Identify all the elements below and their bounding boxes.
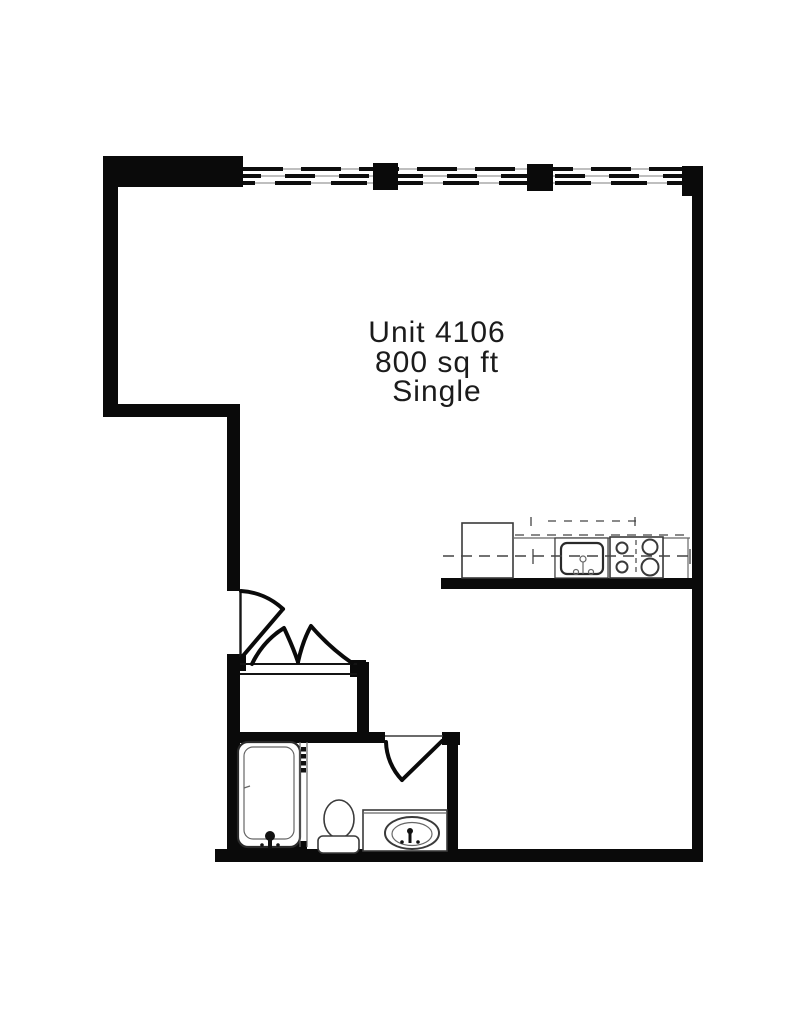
floor-plan-drawing: Unit 4106 800 sq ft Single <box>0 0 796 1030</box>
unit-type-text: Single <box>392 375 481 408</box>
window-mullion <box>527 164 553 191</box>
bathtub-icon <box>238 742 307 848</box>
vanity-faucet-stem <box>409 833 412 843</box>
toilet-bowl <box>324 800 354 838</box>
tile-mark <box>301 747 306 752</box>
wall-west-upper <box>103 156 118 417</box>
stove-icon <box>610 537 663 578</box>
floor-plan-page: Unit 4106 800 sq ft Single <box>0 0 796 1030</box>
wall-closet-east <box>357 662 369 738</box>
tub-faucet-stem <box>268 839 272 848</box>
tile-mark <box>301 754 306 759</box>
wall-top-left <box>103 156 243 187</box>
stove-burner <box>642 559 659 576</box>
tub-handle <box>260 843 264 847</box>
wall-west-middle <box>227 404 240 591</box>
stove-burner <box>643 540 658 555</box>
tile-mark <box>301 768 306 773</box>
tile-mark <box>301 761 306 766</box>
background <box>0 0 796 1030</box>
vanity-handle <box>416 840 420 844</box>
stove-burner <box>617 562 628 573</box>
stove-burner <box>617 543 628 554</box>
wall-kitchen-base <box>441 578 692 589</box>
toilet-tank <box>318 836 359 853</box>
kitchen-sink-icon <box>555 538 608 578</box>
vanity-sink-icon <box>363 810 447 851</box>
tub-handle <box>276 843 280 847</box>
wall-bathroom-east <box>447 732 458 851</box>
unit-number-text: Unit 4106 <box>368 316 505 349</box>
wall-top-right-column <box>682 166 703 196</box>
vanity-handle <box>400 840 404 844</box>
wall-south <box>215 849 703 862</box>
refrigerator-icon <box>462 523 513 578</box>
wall-east <box>692 168 703 862</box>
sink-basin <box>561 543 603 574</box>
window-mullion <box>373 163 398 190</box>
wall-step <box>103 404 240 417</box>
